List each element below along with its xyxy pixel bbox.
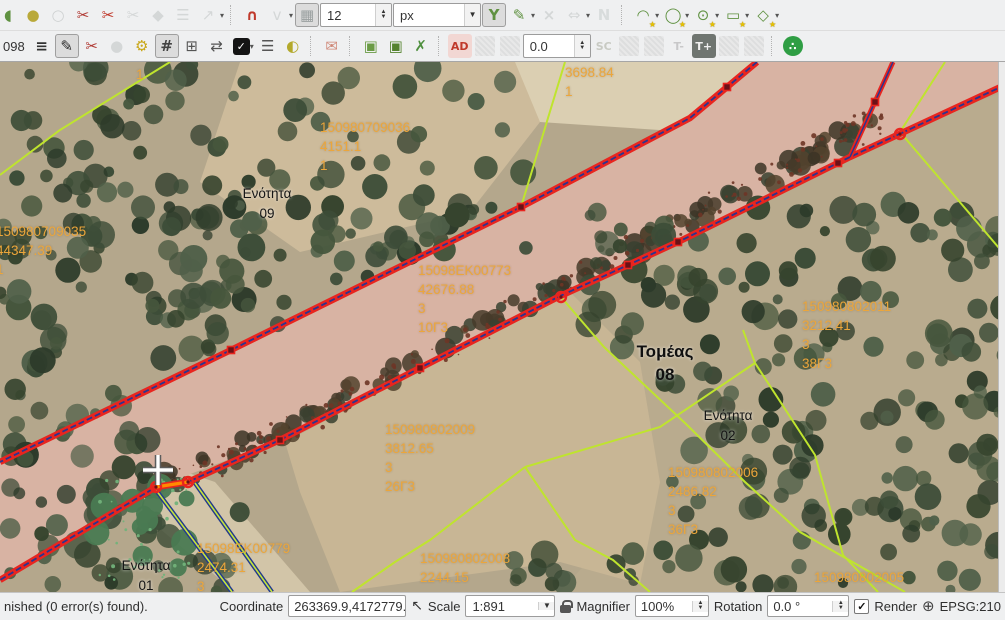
box-3d-icon[interactable]: ▣ bbox=[359, 34, 383, 58]
lock-scale-icon[interactable] bbox=[560, 605, 571, 613]
offset-point-tool-icon[interactable]: ◖ bbox=[0, 3, 20, 27]
move-feature-icon[interactable]: ● bbox=[21, 3, 45, 27]
box-3d-filled-icon[interactable]: ▣ bbox=[384, 34, 408, 58]
reload-layer-icon[interactable]: ⇄ bbox=[205, 34, 229, 58]
vertex-marker[interactable] bbox=[835, 160, 842, 167]
vertex-marker[interactable] bbox=[518, 204, 525, 211]
disabled-plugin-5[interactable] bbox=[719, 36, 739, 56]
digitizing-toolbar: ◖●○✂✂✂◆☰↗▾∩v▾▦12▲▼px▼Y✎▾×⇔▾N◠★▾◯★▾⊙★▾▭★▾… bbox=[0, 0, 1005, 31]
text-larger-button[interactable]: T+ bbox=[692, 34, 716, 58]
ellipse-tool-dropdown[interactable]: ▾ bbox=[715, 11, 719, 20]
vertex-ring-center bbox=[559, 295, 562, 298]
plugins-toolbar: 098 ≡✎✂●⚙#⊞⇄✓▾☰◐✉▣▣✗AD0.0▲▼SCT-T+∴ bbox=[0, 31, 1005, 62]
move-vertex-icon: ⇔ bbox=[562, 3, 586, 27]
toolbar-separator bbox=[310, 36, 315, 56]
scale-dropdown-arrow[interactable]: ▼ bbox=[538, 602, 554, 610]
circular-string-tool-dropdown[interactable]: ▾ bbox=[655, 11, 659, 20]
node-gear-icon[interactable]: ⚙ bbox=[130, 34, 154, 58]
snap-tolerance-spinbox[interactable]: 12▲▼ bbox=[320, 3, 392, 27]
merge-attributes-icon: ☰ bbox=[171, 3, 195, 27]
vertex-marker[interactable] bbox=[625, 262, 632, 269]
magnifier-label: Magnifier bbox=[576, 599, 629, 614]
panel-strip bbox=[998, 62, 1005, 592]
magnifier-value: 100% bbox=[636, 599, 692, 614]
map-canvas[interactable]: 13698.8411509807090364151.11Ενότητα09150… bbox=[0, 62, 1005, 592]
render-label: Render bbox=[874, 599, 917, 614]
rotation-spin-arrows[interactable]: ▲▼ bbox=[832, 601, 848, 612]
disabled-plugin-6[interactable] bbox=[744, 36, 764, 56]
vertex-ring-center bbox=[898, 132, 901, 135]
circular-string-tool[interactable]: ◠★ bbox=[631, 3, 655, 27]
vertex-marker[interactable] bbox=[724, 84, 731, 91]
new-feature-badge: ★ bbox=[769, 20, 776, 29]
disabled-plugin-1[interactable] bbox=[475, 36, 495, 56]
ellipse-tool[interactable]: ⊙★ bbox=[691, 3, 715, 27]
node-scissors-icon[interactable]: ✂ bbox=[71, 3, 95, 27]
circle-tool[interactable]: ◯★ bbox=[661, 3, 685, 27]
delete-vertex-icon: × bbox=[537, 3, 561, 27]
disabled-plugin-2[interactable] bbox=[500, 36, 520, 56]
snapping-mode-icon: v bbox=[265, 3, 289, 27]
simplify-feature-icon: ○ bbox=[46, 3, 70, 27]
toolbar-separator bbox=[771, 36, 776, 56]
circle-tool-dropdown[interactable]: ▾ bbox=[685, 11, 689, 20]
select-options-toggle-dropdown[interactable]: ▾ bbox=[250, 42, 254, 51]
toolbar-separator bbox=[230, 5, 235, 25]
add-grid-record-icon[interactable]: ⊞ bbox=[180, 34, 204, 58]
vertex-marker[interactable] bbox=[228, 347, 235, 354]
merge-features-icon: ◆ bbox=[146, 3, 170, 27]
vertex-marker[interactable] bbox=[417, 365, 424, 372]
coordinate-input[interactable]: 263369.9,4172779.6 bbox=[288, 595, 406, 617]
repair-tools-icon[interactable]: ✗ bbox=[409, 34, 433, 58]
rotate-feature-icon-dropdown[interactable]: ▾ bbox=[220, 11, 224, 20]
crs-label: EPSG:210 bbox=[940, 599, 1001, 614]
angle-spinbox[interactable]: 0.0▲▼ bbox=[523, 34, 591, 58]
offset-curve-icon: N bbox=[592, 3, 616, 27]
render-checkbox[interactable] bbox=[854, 599, 869, 614]
select-options-toggle[interactable]: ✓ bbox=[233, 38, 250, 55]
toggle-editing-button[interactable]: ✎ bbox=[55, 34, 79, 58]
trace-settings-icon-dropdown[interactable]: ▾ bbox=[531, 11, 535, 20]
rotation-spinbox[interactable]: 0.0 ° ▲▼ bbox=[767, 595, 849, 617]
trace-settings-icon[interactable]: ✎ bbox=[507, 3, 531, 27]
vertex-marker[interactable] bbox=[872, 99, 879, 106]
rectangle-tool-dropdown[interactable]: ▾ bbox=[745, 11, 749, 20]
share-button[interactable]: ∴ bbox=[783, 36, 803, 56]
vertex-ring-center bbox=[186, 480, 189, 483]
scale-value: 1:891 bbox=[466, 599, 538, 614]
magnifier-spin-arrows[interactable]: ▲▼ bbox=[692, 601, 708, 612]
sc-plugin-button: SC bbox=[592, 34, 616, 58]
scale-label: Scale bbox=[428, 599, 461, 614]
paste-node-icon: ● bbox=[105, 34, 129, 58]
toolbar-separator bbox=[349, 36, 354, 56]
ad-plugin-button[interactable]: AD bbox=[448, 34, 472, 58]
regular-polygon-tool-dropdown[interactable]: ▾ bbox=[775, 11, 779, 20]
rotation-value: 0.0 ° bbox=[768, 599, 832, 614]
split-parts-icon: ✂ bbox=[121, 3, 145, 27]
layer-order-icon[interactable]: ≡ bbox=[30, 34, 54, 58]
layer-name-fragment: 098 bbox=[3, 39, 25, 54]
new-feature-badge: ★ bbox=[649, 20, 656, 29]
snap-units-combo[interactable]: px▼ bbox=[393, 3, 481, 27]
disabled-plugin-4[interactable] bbox=[644, 36, 664, 56]
cut-node-icon[interactable]: ✂ bbox=[80, 34, 104, 58]
map-svg bbox=[0, 62, 1005, 592]
scale-combo[interactable]: 1:891 ▼ bbox=[465, 595, 555, 617]
vertex-ring-center bbox=[154, 485, 157, 488]
mail-icon[interactable]: ✉ bbox=[320, 34, 344, 58]
crs-globe-icon[interactable]: ⊕ bbox=[922, 597, 935, 615]
split-features-icon[interactable]: ✂ bbox=[96, 3, 120, 27]
tracing-toggle[interactable]: Y bbox=[482, 3, 506, 27]
rotate-feature-icon: ↗ bbox=[196, 3, 220, 27]
coordinate-label: Coordinate bbox=[220, 599, 284, 614]
regular-polygon-tool[interactable]: ◇★ bbox=[751, 3, 775, 27]
new-feature-badge: ★ bbox=[739, 20, 746, 29]
move-vertex-icon-dropdown[interactable]: ▾ bbox=[586, 11, 590, 20]
snapping-mode-icon-dropdown[interactable]: ▾ bbox=[289, 11, 293, 20]
status-message: nished (0 error(s) found). bbox=[4, 599, 148, 614]
snapping-magnet-icon[interactable]: ∩ bbox=[240, 3, 264, 27]
status-bar: nished (0 error(s) found). Coordinate 26… bbox=[0, 592, 1005, 619]
new-feature-badge: ★ bbox=[709, 20, 716, 29]
toggle-extents-icon[interactable]: ↖ bbox=[411, 598, 423, 614]
magnifier-spinbox[interactable]: 100% ▲▼ bbox=[635, 595, 709, 617]
rotation-label: Rotation bbox=[714, 599, 762, 614]
toolbar-separator bbox=[438, 36, 443, 56]
rectangle-tool[interactable]: ▭★ bbox=[721, 3, 745, 27]
toolbar-separator bbox=[621, 5, 626, 25]
vertex-marker[interactable] bbox=[675, 239, 682, 246]
vertex-marker[interactable] bbox=[277, 437, 284, 444]
text-smaller-button: T- bbox=[667, 34, 691, 58]
checklist-icon[interactable]: ☰ bbox=[256, 34, 280, 58]
vertex-tool-button[interactable]: # bbox=[155, 34, 179, 58]
disabled-plugin-3[interactable] bbox=[619, 36, 639, 56]
highlighter-icon[interactable]: ◐ bbox=[281, 34, 305, 58]
intersection-snap-toggle[interactable]: ▦ bbox=[295, 3, 319, 27]
new-feature-badge: ★ bbox=[679, 20, 686, 29]
